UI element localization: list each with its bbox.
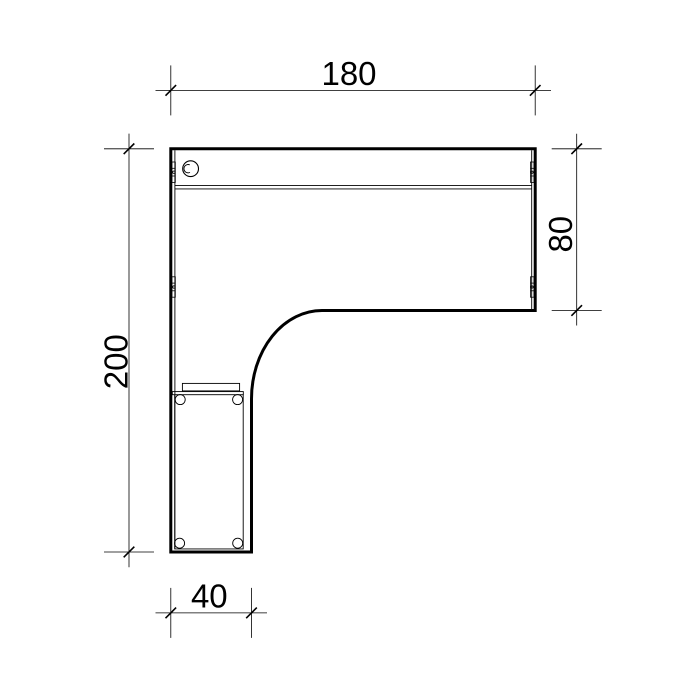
svg-text:180: 180 xyxy=(321,55,376,92)
svg-text:40: 40 xyxy=(191,577,228,614)
svg-text:80: 80 xyxy=(542,216,579,253)
svg-text:200: 200 xyxy=(97,334,134,389)
